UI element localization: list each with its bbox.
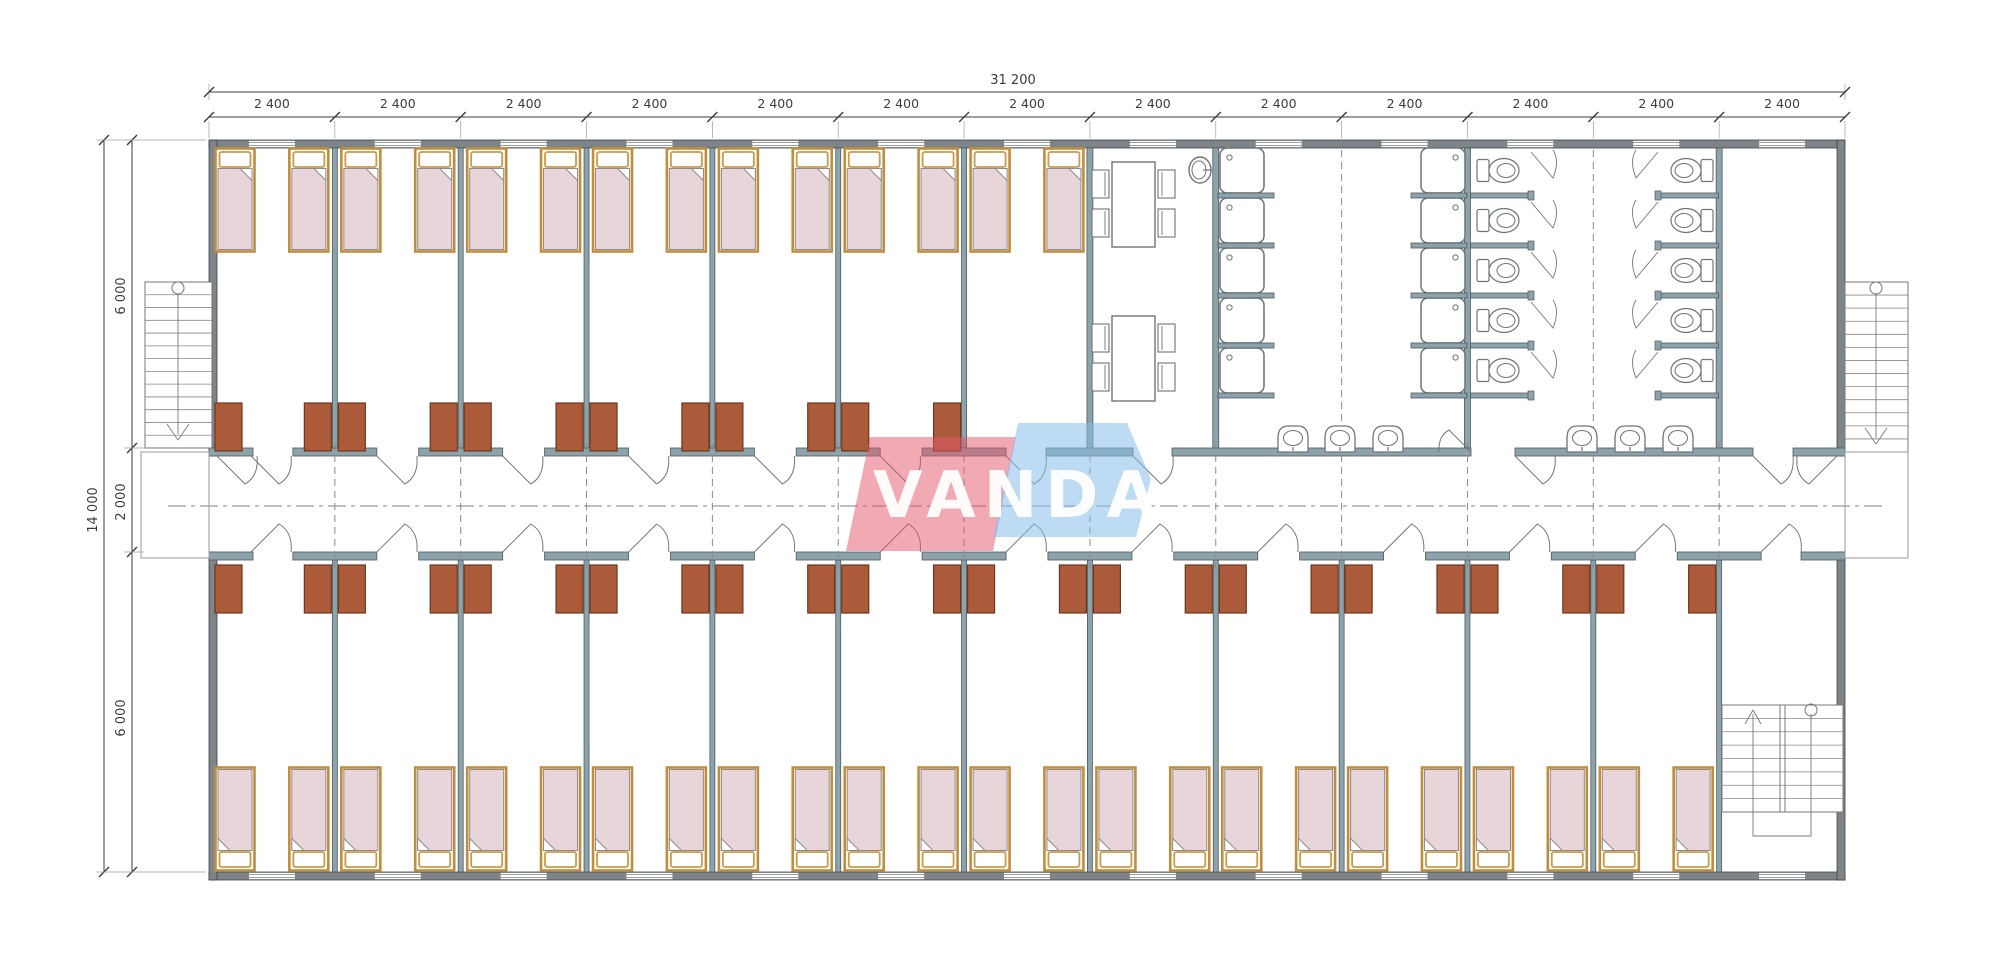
wardrobe xyxy=(464,565,491,613)
door-swing xyxy=(1531,250,1557,278)
wardrobe xyxy=(682,403,709,451)
dining-area xyxy=(1092,157,1212,401)
logo-text: VANDA xyxy=(873,459,1164,533)
bed xyxy=(1600,768,1639,871)
shower-stall xyxy=(1220,198,1264,243)
wardrobe xyxy=(716,565,743,613)
door-post xyxy=(1655,291,1661,300)
wardrobe xyxy=(215,403,242,451)
bed xyxy=(719,768,758,871)
corridor-wall-stub xyxy=(209,552,253,560)
window xyxy=(375,141,421,147)
wardrobe xyxy=(1597,565,1624,613)
shower-stall xyxy=(1421,148,1465,193)
entry-landing-left xyxy=(141,452,209,558)
toilet-partition xyxy=(1659,293,1719,298)
bed xyxy=(341,768,380,871)
window xyxy=(1256,873,1302,879)
shower-separator xyxy=(1218,393,1274,398)
window xyxy=(249,873,295,879)
window xyxy=(626,141,672,147)
toilet xyxy=(1477,259,1519,283)
wardrobe xyxy=(808,565,835,613)
window xyxy=(1759,141,1805,147)
window xyxy=(501,141,547,147)
window xyxy=(752,141,798,147)
toilet-partition xyxy=(1659,243,1719,248)
wardrobe xyxy=(304,403,331,451)
shower-stall xyxy=(1421,298,1465,343)
bed xyxy=(1548,768,1587,871)
window xyxy=(1130,873,1176,879)
toilet-partition xyxy=(1471,243,1531,248)
door-swing xyxy=(1509,524,1549,552)
wardrobe xyxy=(1059,565,1086,613)
toilet-partition xyxy=(1659,193,1719,198)
wash-basin xyxy=(1373,426,1403,452)
exterior-wall-right xyxy=(1837,140,1845,456)
corridor-wall xyxy=(1793,448,1845,456)
partition-wall xyxy=(710,148,715,448)
dimension-label-bay: 2 400 xyxy=(757,96,793,111)
door-swing xyxy=(1531,200,1557,228)
door-post xyxy=(1528,391,1534,400)
bed xyxy=(541,768,580,871)
toilet xyxy=(1671,209,1713,233)
bed xyxy=(467,768,506,871)
toilet-partition xyxy=(1471,293,1531,298)
dining-chair xyxy=(1158,324,1175,352)
bed xyxy=(593,149,632,252)
door-swing xyxy=(1258,524,1298,552)
bed xyxy=(415,768,454,871)
shower-stall xyxy=(1220,148,1264,193)
wardrobe xyxy=(1689,565,1716,613)
window xyxy=(501,873,547,879)
wardrobe xyxy=(338,403,365,451)
dining-chair xyxy=(1158,170,1175,198)
bed xyxy=(1222,768,1261,871)
shower-separator xyxy=(1411,243,1467,248)
toilet xyxy=(1477,209,1519,233)
wardrobe xyxy=(1093,565,1120,613)
toilet-partition xyxy=(1471,343,1531,348)
door-post xyxy=(1655,391,1661,400)
dimension-label-bay: 2 400 xyxy=(883,96,919,111)
window xyxy=(878,873,924,879)
bed xyxy=(971,768,1010,871)
door-swing xyxy=(1515,456,1555,484)
bed xyxy=(1474,768,1513,871)
shower-separator xyxy=(1411,193,1467,198)
bed xyxy=(216,149,255,252)
door-swing xyxy=(1633,200,1659,228)
door-swing xyxy=(1531,150,1557,178)
bed xyxy=(919,149,958,252)
partition-wall xyxy=(962,148,967,448)
bed xyxy=(467,149,506,252)
dimension-label-total-height: 14 000 xyxy=(86,487,101,533)
wardrobe xyxy=(215,565,242,613)
bed xyxy=(1170,768,1209,871)
dining-chair xyxy=(1092,170,1109,198)
dining-chair xyxy=(1092,209,1109,237)
door-swing xyxy=(629,456,669,484)
door-post xyxy=(1655,241,1661,250)
door-swing xyxy=(1384,524,1424,552)
toilet-partition xyxy=(1471,193,1531,198)
window xyxy=(1382,141,1428,147)
stair-internal xyxy=(1722,704,1843,836)
wardrobe xyxy=(1345,565,1372,613)
door-swing xyxy=(217,456,257,484)
shower-stall xyxy=(1220,298,1264,343)
bed xyxy=(667,149,706,252)
partition-wall xyxy=(332,560,337,872)
bed xyxy=(719,149,758,252)
partition-wall xyxy=(584,560,589,872)
corridor-wall xyxy=(1172,448,1471,456)
wardrobe xyxy=(1437,565,1464,613)
window xyxy=(249,141,295,147)
bed xyxy=(793,768,832,871)
wardrobe xyxy=(716,403,743,451)
toilet xyxy=(1671,259,1713,283)
wardrobe xyxy=(842,403,869,451)
shower-separator xyxy=(1411,393,1467,398)
bed xyxy=(845,149,884,252)
shower-separator xyxy=(1218,293,1274,298)
shower-separator xyxy=(1218,243,1274,248)
wardrobe xyxy=(1311,565,1338,613)
door-post xyxy=(1528,341,1534,350)
floor-plan-page: 31 2002 4002 4002 4002 4002 4002 4002 40… xyxy=(0,0,2000,977)
toilet xyxy=(1477,359,1519,383)
dining-chair xyxy=(1158,209,1175,237)
shower-stall xyxy=(1421,198,1465,243)
shower-separator xyxy=(1218,193,1274,198)
wardrobe xyxy=(430,565,457,613)
bed xyxy=(1296,768,1335,871)
bed xyxy=(415,149,454,252)
partition-wall xyxy=(1465,560,1470,872)
wardrobe xyxy=(304,565,331,613)
dimension-label-corridor: 2 000 xyxy=(114,483,129,520)
bed xyxy=(1044,768,1083,871)
wardrobe xyxy=(590,565,617,613)
dimension-label-bay: 2 400 xyxy=(1638,96,1674,111)
door-swing xyxy=(1633,250,1659,278)
bed xyxy=(341,149,380,252)
door-swing xyxy=(1531,300,1557,328)
shower-separator xyxy=(1411,343,1467,348)
wardrobe xyxy=(556,565,583,613)
stair-flight xyxy=(1845,282,1908,452)
wardrobe xyxy=(1471,565,1498,613)
bed xyxy=(289,149,328,252)
wardrobe xyxy=(934,565,961,613)
bed xyxy=(919,768,958,871)
shower-stall xyxy=(1421,348,1465,393)
dimension-label-lower-depth: 6 000 xyxy=(114,699,129,736)
bed xyxy=(289,768,328,871)
toilet xyxy=(1671,309,1713,333)
shower-stall xyxy=(1220,248,1264,293)
door-post xyxy=(1655,341,1661,350)
door-swing xyxy=(503,456,543,484)
door-swing xyxy=(1531,350,1557,378)
bed xyxy=(1096,768,1135,871)
door-swing xyxy=(1633,350,1659,378)
toilet xyxy=(1477,309,1519,333)
window xyxy=(878,141,924,147)
dimension-label-bay: 2 400 xyxy=(506,96,542,111)
window xyxy=(1382,873,1428,879)
bed xyxy=(1674,768,1713,871)
door-swing xyxy=(503,524,543,552)
partition-wall xyxy=(836,560,841,872)
partition-wall xyxy=(1591,560,1596,872)
door-post xyxy=(1528,241,1534,250)
window xyxy=(1004,141,1050,147)
bed xyxy=(593,768,632,871)
door-swing xyxy=(1633,150,1659,178)
door-swing xyxy=(377,456,417,484)
dimension-label-bay: 2 400 xyxy=(380,96,416,111)
stair-flight xyxy=(145,282,212,448)
shower-stall xyxy=(1220,348,1264,393)
bed xyxy=(1348,768,1387,871)
wash-basin xyxy=(1615,426,1645,452)
wardrobe xyxy=(1563,565,1590,613)
partition-wall xyxy=(1213,560,1218,872)
wash-basin xyxy=(1278,426,1308,452)
dimension-label-bay: 2 400 xyxy=(1261,96,1297,111)
wash-basin xyxy=(1325,426,1355,452)
partition-wall xyxy=(836,148,841,448)
door-swing xyxy=(754,524,794,552)
dimension-label-total-width: 31 200 xyxy=(990,73,1036,88)
window xyxy=(375,873,421,879)
door-swing xyxy=(629,524,669,552)
partition-wall xyxy=(458,148,463,448)
partition-wall xyxy=(962,560,967,872)
dimension-label-bay: 2 400 xyxy=(1764,96,1800,111)
wardrobe xyxy=(430,403,457,451)
door-post xyxy=(1528,191,1534,200)
door-swing xyxy=(1635,524,1675,552)
bed xyxy=(667,768,706,871)
toilet-partition xyxy=(1659,393,1719,398)
dining-chair xyxy=(1158,363,1175,391)
door-swing xyxy=(377,524,417,552)
dimension-label-bay: 2 400 xyxy=(254,96,290,111)
wardrobe xyxy=(1185,565,1212,613)
dining-chair xyxy=(1092,324,1109,352)
toilet-partition xyxy=(1471,393,1531,398)
door-swing xyxy=(1761,524,1801,552)
dimension-label-upper-depth: 6 000 xyxy=(114,277,129,314)
window xyxy=(1507,873,1553,879)
wash-basin xyxy=(1567,426,1597,452)
wash-basin xyxy=(1663,426,1693,452)
door-post xyxy=(1528,291,1534,300)
partition-wall xyxy=(1087,560,1092,872)
shower-separator xyxy=(1218,343,1274,348)
dimension-label-bay: 2 400 xyxy=(1009,96,1045,111)
wardrobe xyxy=(556,403,583,451)
dimension-label-bay: 2 400 xyxy=(1135,96,1171,111)
door-swing xyxy=(1633,300,1659,328)
partition-wall xyxy=(332,148,337,448)
corridor-bottom-wall xyxy=(209,552,1845,560)
floor-plan-drawing: 31 2002 4002 4002 4002 4002 4002 4002 40… xyxy=(0,0,2000,977)
dining-table xyxy=(1112,316,1155,401)
partition-wall xyxy=(458,560,463,872)
window xyxy=(752,873,798,879)
wardrobe xyxy=(968,565,995,613)
partition-wall xyxy=(1339,560,1344,872)
wardrobe xyxy=(842,565,869,613)
dimension-label-bay: 2 400 xyxy=(1512,96,1548,111)
bed xyxy=(971,149,1010,252)
entry-landing-right xyxy=(1845,452,1908,558)
window xyxy=(1633,873,1679,879)
corridor-wall-stub xyxy=(1801,552,1845,560)
shower-separator xyxy=(1411,293,1467,298)
partition-wall xyxy=(584,148,589,448)
bed xyxy=(1422,768,1461,871)
partition-wall xyxy=(710,560,715,872)
dining-table xyxy=(1112,162,1155,247)
shower-stall xyxy=(1421,248,1465,293)
bed xyxy=(216,768,255,871)
window xyxy=(1256,141,1302,147)
dimension-label-bay: 2 400 xyxy=(632,96,668,111)
door-swing xyxy=(754,456,794,484)
toilet xyxy=(1477,159,1519,183)
bed xyxy=(793,149,832,252)
door-swing xyxy=(1753,456,1793,484)
dining-chair xyxy=(1092,363,1109,391)
window xyxy=(1759,873,1805,879)
wardrobe xyxy=(682,565,709,613)
door-post xyxy=(1655,191,1661,200)
wardrobe xyxy=(1219,565,1246,613)
toilet xyxy=(1671,359,1713,383)
toilet-partition xyxy=(1659,343,1719,348)
wardrobe xyxy=(338,565,365,613)
bed xyxy=(541,149,580,252)
logo-watermark: VANDA xyxy=(846,423,1164,551)
toilet xyxy=(1671,159,1713,183)
window xyxy=(1633,141,1679,147)
wardrobe xyxy=(808,403,835,451)
window xyxy=(1507,141,1553,147)
window xyxy=(1004,873,1050,879)
partition-wall xyxy=(1717,560,1722,872)
bed xyxy=(1044,149,1083,252)
door-swing xyxy=(1797,456,1837,484)
bed xyxy=(845,768,884,871)
window xyxy=(1130,141,1176,147)
door-swing xyxy=(251,524,291,552)
window xyxy=(626,873,672,879)
wardrobe xyxy=(464,403,491,451)
dimension-label-bay: 2 400 xyxy=(1387,96,1423,111)
wardrobe xyxy=(590,403,617,451)
